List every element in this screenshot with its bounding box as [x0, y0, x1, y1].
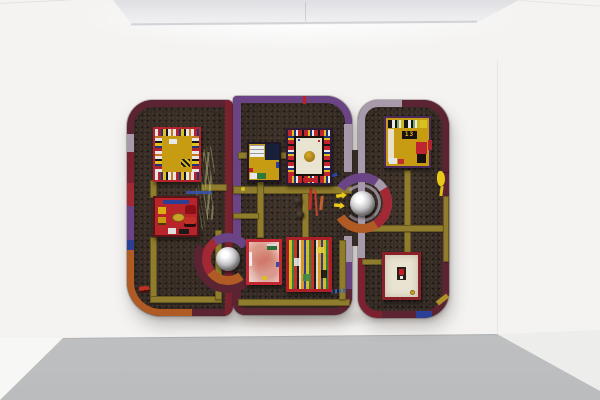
red-dot	[249, 168, 253, 172]
red-inset	[399, 269, 404, 275]
gold-blob	[304, 151, 315, 162]
gallery-photo: 13	[0, 0, 600, 400]
yellow-dot	[262, 276, 267, 280]
panel-ivory-object	[382, 252, 421, 300]
road-segment	[362, 259, 382, 265]
border-segment-blue	[416, 311, 432, 318]
mosaic-tile	[321, 270, 327, 278]
paint-tick-red	[303, 96, 306, 104]
black-block	[417, 154, 426, 163]
tiny-dot	[318, 140, 320, 142]
white-tile	[168, 228, 176, 234]
fixture-seam	[305, 2, 306, 21]
panel-ivory-tray-board	[286, 128, 332, 185]
black-tile	[179, 229, 189, 234]
border-segment	[127, 183, 134, 206]
wall-corner-right	[497, 60, 498, 334]
road-segment	[238, 299, 350, 306]
toy-car	[185, 205, 196, 214]
sticker-tiles	[155, 129, 199, 136]
blue-tab	[276, 262, 279, 267]
navy-block	[265, 144, 279, 160]
red-block	[416, 142, 427, 154]
yellow-tile	[158, 207, 166, 214]
panel-small-collage-board	[247, 142, 281, 182]
road-segment	[150, 237, 157, 299]
tiny-dot	[298, 139, 300, 141]
relief-bump	[296, 211, 304, 219]
white-sticker	[169, 139, 177, 144]
sticker-tiles	[388, 120, 422, 128]
chrome-dome	[216, 247, 240, 271]
mosaic-tile	[294, 258, 300, 266]
border-segment	[127, 152, 134, 183]
hazard-sticker	[181, 159, 190, 167]
gold-coin	[410, 290, 415, 295]
sticker-tiles	[155, 136, 162, 172]
blue-tab	[276, 162, 279, 168]
mosaic-tile	[303, 274, 311, 281]
white-dot	[400, 276, 403, 279]
red-strip	[303, 178, 315, 182]
border-segment	[127, 206, 134, 240]
border-segment	[127, 240, 134, 250]
sticker-tiles	[155, 172, 199, 180]
yellow-tile	[420, 120, 427, 128]
mosaic-tile	[317, 247, 324, 253]
border-segment	[161, 309, 192, 316]
small-red-object	[397, 267, 406, 280]
toy-car	[184, 217, 196, 227]
road-segment	[150, 296, 222, 303]
panel-yellow-numbered-board: 13	[384, 116, 431, 168]
white-strip	[249, 252, 252, 266]
white-tile	[389, 158, 397, 164]
panel-pink-photo	[246, 239, 282, 285]
border-segment	[344, 124, 352, 172]
panel-sticker-mosaic	[286, 237, 332, 292]
panel-sticker-ring-board	[153, 127, 201, 182]
blue-dash	[186, 191, 212, 194]
green-sticker	[267, 244, 277, 250]
red-tile	[398, 159, 404, 164]
yellow-paint-drip	[437, 171, 445, 186]
border-segment	[382, 311, 416, 318]
red-tab	[428, 140, 432, 150]
yellow-dot	[241, 187, 245, 191]
green-strip	[250, 173, 266, 179]
white-sticker-cluster	[250, 145, 264, 157]
road-segment	[233, 213, 259, 219]
panel-toy-car-board	[153, 196, 199, 237]
yellow-tile	[158, 217, 166, 225]
relief-bump	[294, 197, 302, 205]
blue-strip	[163, 200, 189, 204]
chrome-dome	[350, 191, 375, 216]
board-number-label: 13	[402, 131, 417, 139]
sticker-tiles	[192, 136, 199, 172]
road-segment	[404, 170, 411, 254]
road-segment	[443, 196, 449, 262]
sticker-tiles	[324, 136, 330, 176]
